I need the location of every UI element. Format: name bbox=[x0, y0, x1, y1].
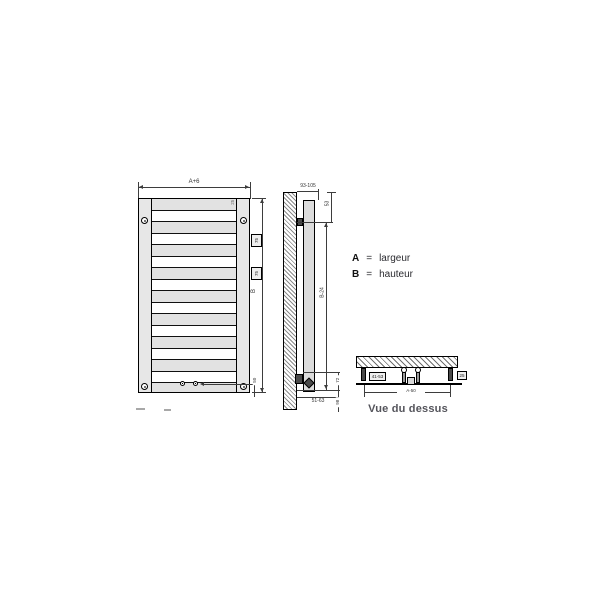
dim-arrow-icon bbox=[324, 223, 328, 227]
side-pipe-label: 98 bbox=[336, 397, 341, 407]
dim-arrow-icon bbox=[245, 185, 249, 189]
reference-line bbox=[297, 390, 340, 391]
mounting-hole-icon bbox=[240, 217, 247, 224]
dim-arrow-icon bbox=[324, 385, 328, 389]
mounting-hole-icon bbox=[141, 383, 148, 390]
valve-leader-line bbox=[203, 384, 256, 385]
radiator-bars bbox=[152, 198, 236, 393]
top-right-dim-box: 25 bbox=[457, 371, 467, 380]
legend-value-a: largeur bbox=[379, 253, 410, 264]
dim-extension-line bbox=[364, 385, 365, 397]
pipe-stem bbox=[416, 372, 420, 383]
bar-spacing-label-2: 75 bbox=[254, 271, 259, 276]
legend-key-b: B bbox=[352, 269, 359, 280]
legend-row-b: B = hauteur bbox=[352, 269, 413, 280]
artifact-mark bbox=[136, 408, 145, 410]
legend-key-a: A bbox=[352, 253, 359, 264]
bracket-left bbox=[361, 368, 366, 381]
side-height-label: B-24 bbox=[321, 282, 326, 304]
mounting-hole-icon bbox=[141, 217, 148, 224]
dim-tick bbox=[327, 192, 336, 193]
dim-line-wall-distance bbox=[297, 191, 318, 192]
dim-line-height bbox=[262, 198, 263, 393]
legend-eq: = bbox=[366, 253, 372, 264]
dim-arrow-icon bbox=[139, 185, 143, 189]
side-wall-distance-label: 93-105 bbox=[288, 184, 328, 189]
wall-bracket-bottom bbox=[295, 374, 303, 384]
top-view-caption: Vue du dessus bbox=[352, 403, 464, 415]
right-rail bbox=[236, 198, 250, 393]
dim-line-side-height bbox=[326, 222, 327, 390]
side-bottom-label: 51-63 bbox=[304, 399, 332, 404]
bar-spacing-box-1: 75 bbox=[251, 234, 262, 247]
legend-eq: = bbox=[366, 269, 372, 280]
reference-line bbox=[303, 372, 340, 373]
left-rail bbox=[138, 198, 152, 393]
top-left-dim-label: 41-53 bbox=[372, 374, 384, 379]
dim-line-width bbox=[138, 187, 251, 188]
top-left-dim-box: 41-53 bbox=[369, 372, 386, 381]
dim-arrow-icon bbox=[200, 382, 204, 386]
dim-extension-line bbox=[450, 385, 451, 397]
side-top-offset-label: 53 bbox=[326, 198, 331, 210]
legend-value-b: hauteur bbox=[379, 269, 413, 280]
artifact-mark bbox=[164, 409, 171, 411]
front-height-label: B bbox=[251, 285, 257, 297]
legend-row-a: A = largeur bbox=[352, 253, 410, 264]
front-top-right-label: 25 bbox=[231, 197, 236, 207]
bar-spacing-label-1: 75 bbox=[254, 238, 259, 243]
center-bracket bbox=[407, 377, 415, 385]
top-center-dim-label: A-50 bbox=[397, 389, 425, 394]
bracket-right bbox=[448, 368, 453, 381]
dim-extension-line bbox=[250, 182, 251, 199]
dim-arrow-icon bbox=[260, 199, 264, 203]
pipe-stem bbox=[402, 372, 406, 383]
dim-arrow-icon bbox=[260, 388, 264, 392]
bar-spacing-box-2: 75 bbox=[251, 267, 262, 280]
top-right-dim-label: 25 bbox=[459, 373, 464, 378]
front-bottom-label: 50 bbox=[253, 375, 258, 385]
radiator-profile bbox=[303, 200, 315, 392]
valve-icon bbox=[180, 381, 185, 386]
front-width-label: A+6 bbox=[176, 179, 212, 185]
dim-line-top-offset bbox=[331, 192, 332, 222]
radiator-dimension-diagram: A+6 B 75 75 25 50 bbox=[0, 0, 600, 600]
valve-icon bbox=[193, 381, 198, 386]
side-depth-label: 72 bbox=[336, 375, 341, 385]
wall-section-top bbox=[356, 356, 458, 368]
